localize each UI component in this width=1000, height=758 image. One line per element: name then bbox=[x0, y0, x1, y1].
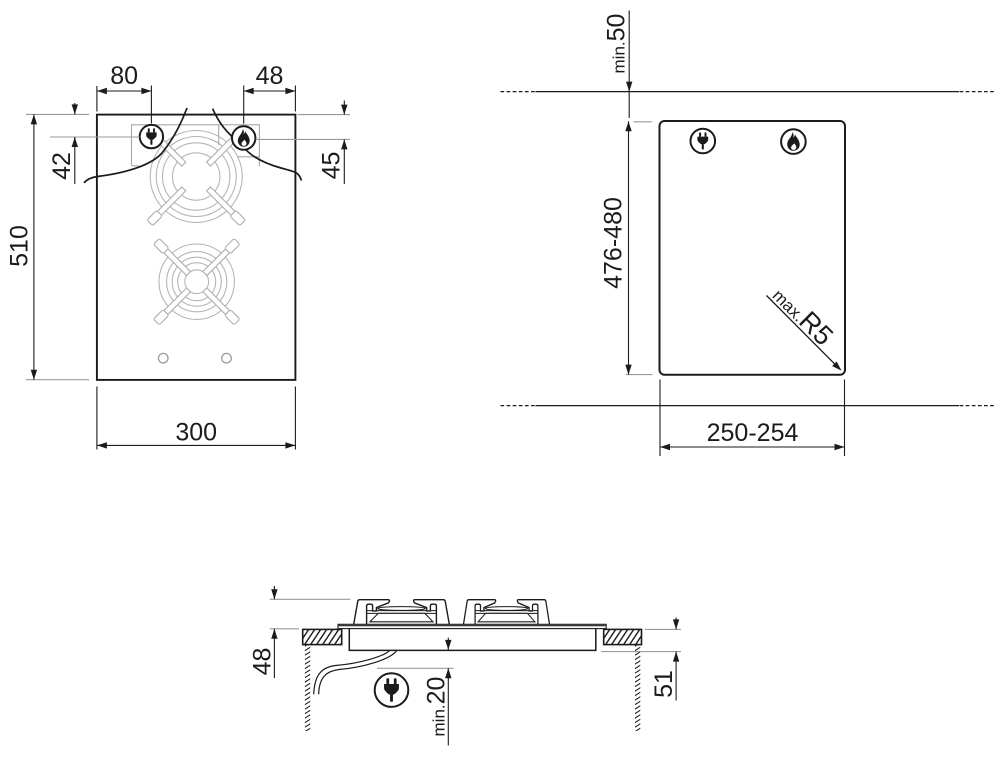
svg-text:45: 45 bbox=[318, 152, 346, 180]
svg-text:min.50: min.50 bbox=[603, 14, 631, 74]
svg-text:48: 48 bbox=[249, 648, 277, 676]
svg-text:42: 42 bbox=[48, 152, 76, 180]
svg-text:250-254: 250-254 bbox=[707, 419, 799, 447]
svg-text:510: 510 bbox=[6, 225, 34, 267]
svg-text:min.20: min.20 bbox=[423, 677, 451, 737]
svg-text:476-480: 476-480 bbox=[600, 197, 628, 289]
svg-text:300: 300 bbox=[175, 419, 217, 447]
svg-text:51: 51 bbox=[650, 670, 678, 698]
svg-text:48: 48 bbox=[256, 62, 284, 90]
svg-text:80: 80 bbox=[110, 62, 138, 90]
